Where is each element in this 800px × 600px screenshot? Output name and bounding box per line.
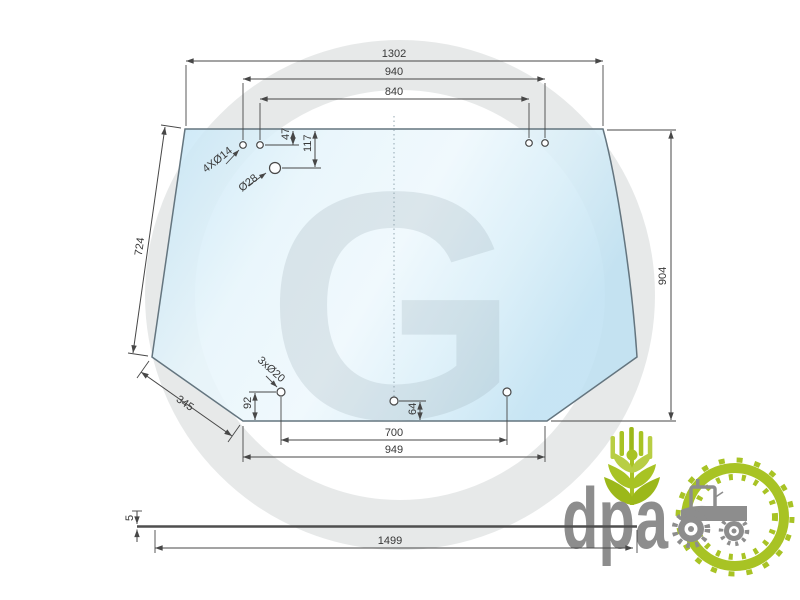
glass-drawing-canvas: G dpa [0,0,800,600]
technical-drawing-page: G dpa [0,0,800,600]
hole-bottom-center [390,397,398,405]
dim-holes-inner-span: 840 [385,86,403,98]
dim-glass-thickness: 5 [124,515,136,521]
dim-top-width: 1302 [382,48,406,60]
dim-bottom-hole-offset-center: 64 [407,403,419,415]
hole-large-28 [270,163,281,174]
dim-right-height: 904 [657,267,669,285]
hole-top-right-outer [542,140,549,147]
dim-top-hole-offset: 47 [280,128,292,140]
dim-left-edge: 724 [133,237,147,257]
dim-bottom-hole-offset-left: 92 [242,397,254,409]
dim-bottom-holes-span: 700 [385,427,403,439]
dim-holes-outer-span: 940 [385,66,403,78]
dpa-wordmark: dpa [562,471,669,567]
dim-overall-length: 1499 [378,535,402,547]
dim-large-hole-offset: 117 [302,134,314,152]
hole-top-left-outer [240,142,247,149]
hole-top-left-inner [257,142,264,149]
hole-bottom-right [503,388,511,396]
dim-bottom-width: 949 [385,444,403,456]
hole-bottom-left [277,388,285,396]
hole-top-right-inner [526,140,533,147]
